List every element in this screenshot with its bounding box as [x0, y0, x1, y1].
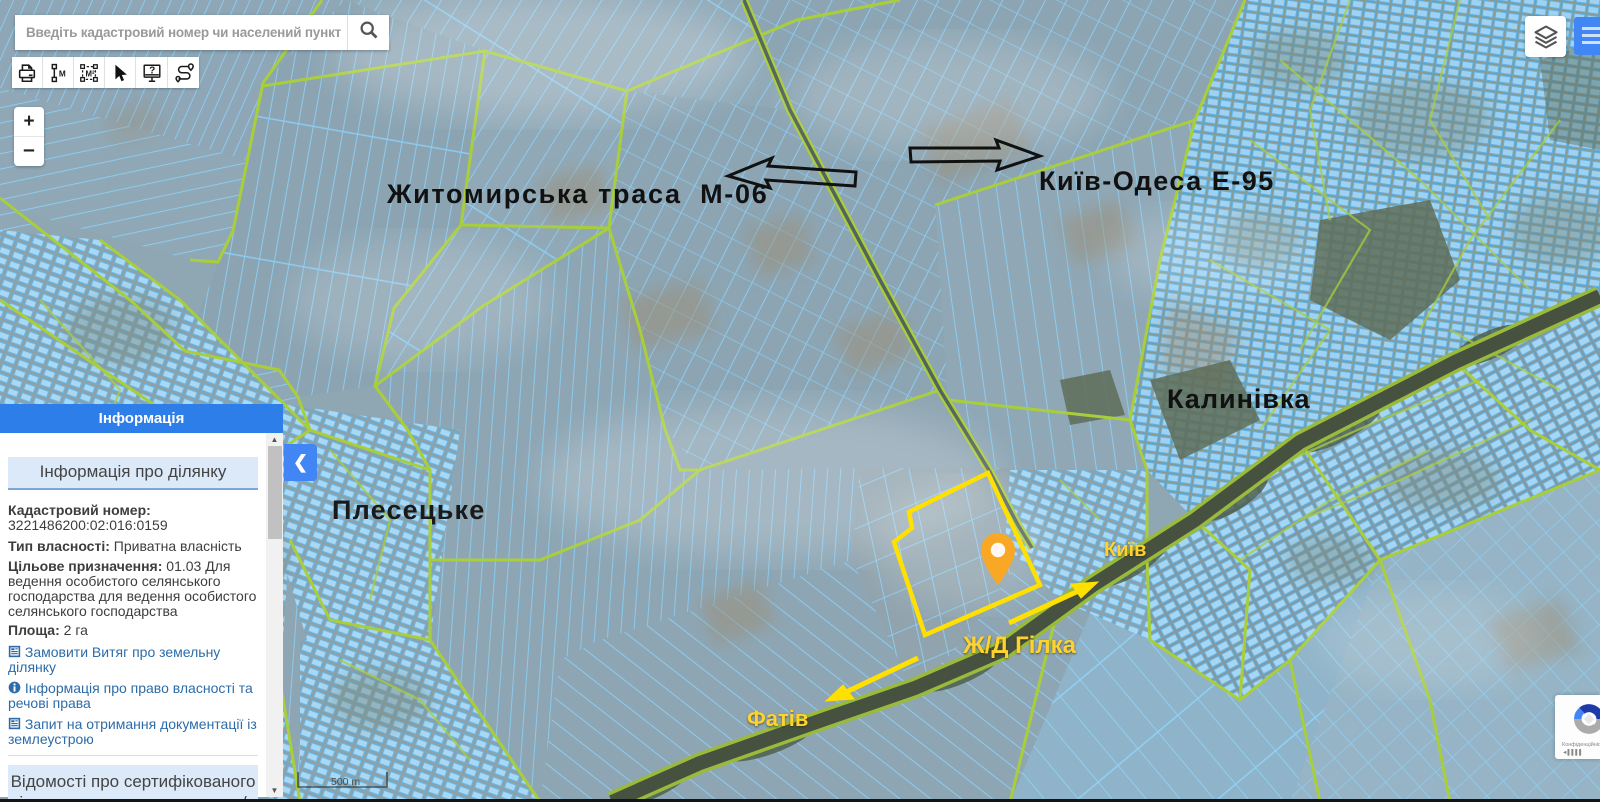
svg-text:M²: M² — [86, 69, 95, 78]
svg-text:M: M — [59, 69, 66, 78]
svg-text:?: ? — [149, 65, 155, 76]
svg-text:500 m: 500 m — [331, 776, 360, 788]
